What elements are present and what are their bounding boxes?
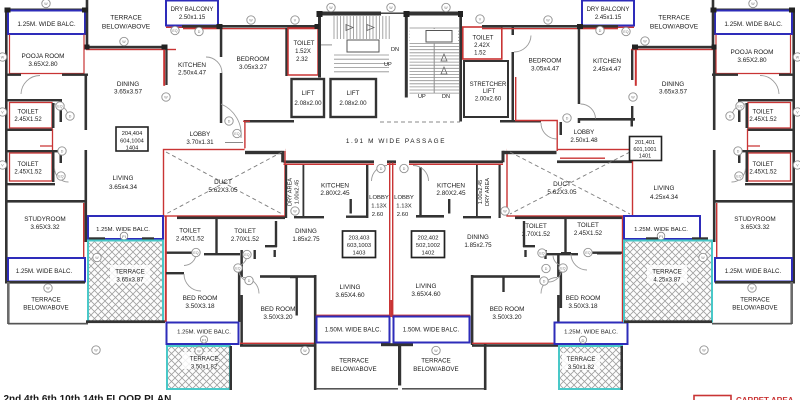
svg-text:1402: 1402	[422, 251, 435, 257]
svg-text:TERRACE: TERRACE	[31, 297, 61, 304]
svg-text:TOILET: TOILET	[577, 222, 599, 229]
svg-text:W: W	[329, 6, 333, 10]
svg-text:D: D	[403, 167, 406, 171]
svg-text:KITCHEN: KITCHEN	[178, 62, 206, 69]
svg-text:UP: UP	[418, 94, 426, 100]
svg-text:TERRACE: TERRACE	[339, 358, 369, 365]
svg-text:BED ROOM: BED ROOM	[183, 295, 218, 302]
svg-text:POOJA ROOM: POOJA ROOM	[731, 49, 774, 56]
svg-text:W: W	[444, 6, 448, 10]
svg-text:TERRACE: TERRACE	[115, 269, 145, 276]
svg-text:POOJA ROOM: POOJA ROOM	[22, 53, 65, 60]
svg-text:STRETCHER: STRETCHER	[470, 82, 507, 88]
svg-text:3.65x3.57: 3.65x3.57	[114, 89, 143, 96]
svg-text:2.60: 2.60	[397, 212, 409, 218]
svg-text:D: D	[61, 150, 64, 154]
svg-text:TOILET: TOILET	[525, 223, 547, 230]
svg-text:2.00x2.60: 2.00x2.60	[475, 97, 502, 103]
svg-text:EQ: EQ	[193, 251, 198, 255]
svg-text:1.85x2.75: 1.85x2.75	[292, 236, 320, 243]
svg-text:2nd,4th,6th,10th,14th FLOOR PL: 2nd,4th,6th,10th,14th FLOOR PLAN	[4, 394, 172, 400]
svg-text:W: W	[94, 349, 98, 353]
svg-text:3.65X3.32: 3.65X3.32	[30, 224, 60, 231]
svg-text:3.65X4.60: 3.65X4.60	[411, 291, 441, 298]
svg-text:202,402: 202,402	[418, 236, 439, 242]
svg-text:2.32: 2.32	[296, 57, 308, 63]
svg-text:W: W	[293, 210, 297, 214]
svg-text:W: W	[503, 210, 507, 214]
svg-text:EQ: EQ	[58, 175, 63, 179]
svg-text:BELOW/ABOVE: BELOW/ABOVE	[331, 366, 376, 373]
svg-text:EQ: EQ	[539, 252, 544, 256]
svg-text:5.62X3.05: 5.62X3.05	[208, 187, 238, 194]
svg-text:2.45X1.52: 2.45X1.52	[749, 117, 777, 123]
svg-text:W: W	[46, 287, 50, 291]
svg-text:3.65x3.87: 3.65x3.87	[116, 277, 144, 284]
svg-text:EQ: EQ	[172, 29, 177, 33]
svg-text:LIFT: LIFT	[302, 90, 315, 97]
svg-text:W: W	[197, 350, 201, 354]
svg-text:D: D	[729, 115, 732, 119]
svg-text:4.25x3.87: 4.25x3.87	[653, 277, 681, 284]
svg-text:LIVING: LIVING	[416, 283, 437, 290]
svg-text:BELOW/ABOVE: BELOW/ABOVE	[23, 305, 68, 312]
svg-text:EQ: EQ	[57, 105, 62, 109]
svg-text:LIVING: LIVING	[340, 284, 361, 291]
svg-text:BEDROOM: BEDROOM	[236, 56, 269, 63]
svg-text:3.70x1.31: 3.70x1.31	[186, 139, 214, 146]
svg-text:1.13X: 1.13X	[371, 204, 386, 210]
svg-text:1.52X: 1.52X	[295, 49, 311, 55]
svg-text:BED ROOM: BED ROOM	[490, 306, 525, 313]
svg-text:TERRACE: TERRACE	[652, 269, 682, 276]
svg-text:203,403: 203,403	[349, 236, 370, 242]
svg-text:TOILET: TOILET	[234, 228, 256, 235]
svg-text:LOBBY: LOBBY	[394, 195, 414, 201]
svg-text:DINING: DINING	[662, 81, 684, 88]
svg-text:2.70X1.52: 2.70X1.52	[522, 231, 551, 238]
svg-text:2.45X1.52: 2.45X1.52	[574, 230, 603, 237]
svg-text:3.50X3.20: 3.50X3.20	[263, 314, 293, 321]
svg-text:D: D	[198, 30, 201, 34]
svg-text:3.65X4.60: 3.65X4.60	[335, 292, 365, 299]
svg-text:DRY AREA: DRY AREA	[485, 178, 491, 206]
svg-text:D: D	[69, 115, 72, 119]
svg-text:STUDYROOM: STUDYROOM	[734, 216, 776, 223]
svg-text:D: D	[228, 120, 231, 124]
svg-text:3.05x4.47: 3.05x4.47	[531, 66, 560, 73]
svg-text:EQ: EQ	[623, 30, 628, 34]
svg-text:3.50X3.20: 3.50X3.20	[492, 314, 522, 321]
svg-text:STUDYROOM: STUDYROOM	[24, 216, 66, 223]
svg-text:TERRACE: TERRACE	[740, 297, 770, 304]
svg-text:204,404: 204,404	[122, 131, 143, 137]
svg-text:DUCT: DUCT	[214, 179, 232, 186]
svg-text:BEDROOM: BEDROOM	[528, 58, 561, 65]
svg-text:3.65X2.80: 3.65X2.80	[28, 61, 58, 68]
svg-text:W: W	[796, 56, 800, 60]
svg-text:W: W	[303, 349, 307, 353]
svg-text:W: W	[643, 40, 647, 44]
svg-text:2.45X1.52: 2.45X1.52	[176, 236, 205, 243]
svg-text:DINING: DINING	[295, 228, 317, 235]
svg-text:EQ: EQ	[244, 253, 249, 257]
svg-text:3.65X3.32: 3.65X3.32	[740, 224, 770, 231]
svg-text:TOILET: TOILET	[179, 228, 201, 235]
svg-text:3.50X3.18: 3.50X3.18	[185, 303, 215, 310]
svg-text:BED ROOM: BED ROOM	[261, 306, 296, 313]
svg-text:BELOW/ABOVE: BELOW/ABOVE	[732, 305, 777, 312]
svg-text:DRY AREA: DRY AREA	[288, 178, 294, 206]
svg-text:DRY BALCONY: DRY BALCONY	[171, 7, 214, 13]
svg-text:1.00x2.45: 1.00x2.45	[478, 180, 484, 205]
svg-text:LIVING: LIVING	[113, 175, 134, 182]
svg-text:3.65x3.57: 3.65x3.57	[659, 89, 688, 96]
svg-text:KITCHEN: KITCHEN	[321, 183, 349, 190]
svg-text:2.42X: 2.42X	[474, 43, 490, 49]
svg-text:1.85x2.75: 1.85x2.75	[464, 242, 492, 249]
svg-text:1.25M. WIDE BALC.: 1.25M. WIDE BALC.	[16, 268, 73, 275]
svg-text:EQ: EQ	[235, 267, 240, 271]
svg-text:1401: 1401	[639, 154, 651, 160]
svg-text:LIFT: LIFT	[347, 90, 360, 97]
svg-text:TERRACE: TERRACE	[110, 15, 142, 22]
svg-text:LOBBY: LOBBY	[190, 131, 211, 138]
svg-text:CARPET AREA: CARPET AREA	[736, 396, 794, 400]
svg-text:EQ: EQ	[737, 105, 742, 109]
svg-text:1.00x2.45: 1.00x2.45	[295, 180, 301, 205]
svg-text:W: W	[546, 19, 550, 23]
svg-text:DINING: DINING	[467, 234, 489, 241]
svg-text:1403: 1403	[353, 251, 366, 257]
svg-text:TERRACE: TERRACE	[658, 15, 690, 22]
svg-text:DN: DN	[442, 94, 450, 100]
svg-text:2.50x1.48: 2.50x1.48	[570, 137, 598, 144]
svg-text:DUCT: DUCT	[553, 181, 571, 188]
svg-text:2.60: 2.60	[372, 212, 384, 218]
svg-text:TERRACE: TERRACE	[567, 357, 596, 363]
svg-text:BELOW/ABOVE: BELOW/ABOVE	[650, 24, 699, 31]
svg-text:601,1001: 601,1001	[633, 147, 656, 153]
svg-text:D: D	[248, 279, 251, 283]
svg-text:FI: FI	[659, 234, 663, 239]
svg-text:1.25M. WIDE BALC.: 1.25M. WIDE BALC.	[177, 330, 231, 336]
svg-text:2.70X1.52: 2.70X1.52	[231, 236, 260, 243]
svg-text:LOBBY: LOBBY	[574, 129, 595, 136]
svg-text:1.50M. WIDE BALC.: 1.50M. WIDE BALC.	[325, 327, 382, 334]
svg-text:FI: FI	[202, 338, 206, 343]
svg-text:W: W	[1, 56, 5, 60]
svg-text:DRY BALCONY: DRY BALCONY	[587, 7, 630, 13]
svg-text:3.50x1.82: 3.50x1.82	[568, 365, 595, 371]
svg-text:3.50x1.82: 3.50x1.82	[191, 365, 218, 371]
svg-text:W: W	[249, 19, 253, 23]
svg-text:TOILET: TOILET	[294, 41, 315, 47]
svg-text:TERRACE: TERRACE	[421, 358, 451, 365]
svg-text:2.45x4.47: 2.45x4.47	[593, 66, 622, 73]
svg-text:3.05x3.27: 3.05x3.27	[239, 64, 268, 71]
svg-text:3.50X3.18: 3.50X3.18	[568, 303, 598, 310]
svg-text:2.50x1.15: 2.50x1.15	[179, 15, 206, 21]
svg-text:W: W	[701, 256, 705, 260]
svg-text:2.08x2.00: 2.08x2.00	[294, 100, 322, 107]
svg-text:LOBBY: LOBBY	[369, 195, 389, 201]
svg-text:KITCHEN: KITCHEN	[593, 58, 621, 65]
svg-text:LIVING: LIVING	[654, 185, 675, 192]
svg-text:DINING: DINING	[117, 81, 139, 88]
svg-text:1.25M. WIDE BALC.: 1.25M. WIDE BALC.	[725, 268, 782, 275]
svg-text:W: W	[389, 6, 393, 10]
svg-text:EQ: EQ	[560, 267, 565, 271]
svg-text:1.52: 1.52	[474, 51, 486, 57]
svg-text:TERRACE: TERRACE	[190, 357, 219, 363]
svg-text:1.25M. WIDE BALC.: 1.25M. WIDE BALC.	[17, 21, 75, 28]
svg-text:KITCHEN: KITCHEN	[437, 183, 465, 190]
svg-text:2.45x1.15: 2.45x1.15	[595, 15, 622, 21]
svg-text:D: D	[380, 167, 383, 171]
svg-text:1.25M. WIDE BALC.: 1.25M. WIDE BALC.	[564, 330, 618, 336]
svg-text:TOILET: TOILET	[473, 36, 494, 42]
svg-text:W: W	[751, 2, 755, 6]
svg-text:1.13X: 1.13X	[396, 204, 411, 210]
svg-text:W: W	[122, 40, 126, 44]
svg-text:2.45X1.52: 2.45X1.52	[14, 170, 42, 176]
svg-text:1404: 1404	[126, 146, 139, 152]
svg-text:3.65x4.34: 3.65x4.34	[109, 184, 138, 191]
svg-text:2.80X2.45: 2.80X2.45	[436, 190, 466, 197]
svg-text:D: D	[545, 267, 548, 271]
svg-text:BELOW/ABOVE: BELOW/ABOVE	[102, 24, 151, 31]
svg-text:3.65X2.80: 3.65X2.80	[737, 57, 767, 64]
svg-text:603,1003: 603,1003	[347, 243, 371, 249]
svg-text:W: W	[164, 96, 168, 100]
svg-text:W: W	[702, 349, 706, 353]
svg-text:201,401: 201,401	[635, 140, 655, 146]
svg-text:D: D	[599, 29, 602, 33]
svg-text:D: D	[543, 280, 546, 284]
svg-text:D: D	[737, 150, 740, 154]
svg-text:TOILET: TOILET	[18, 162, 39, 168]
svg-text:BELOW/ABOVE: BELOW/ABOVE	[413, 366, 458, 373]
svg-text:W: W	[434, 349, 438, 353]
svg-text:W: W	[95, 256, 99, 260]
svg-text:2.80X2.45: 2.80X2.45	[320, 190, 350, 197]
svg-text:4.25x4.34: 4.25x4.34	[650, 194, 679, 201]
svg-text:EQ: EQ	[234, 132, 239, 136]
svg-text:TOILET: TOILET	[753, 110, 774, 116]
svg-text:5.62X3.05: 5.62X3.05	[547, 189, 577, 196]
svg-text:1.50M. WIDE BALC.: 1.50M. WIDE BALC.	[403, 327, 460, 334]
svg-text:BED ROOM: BED ROOM	[566, 295, 601, 302]
svg-text:2.45X1.52: 2.45X1.52	[749, 170, 777, 176]
svg-text:D: D	[566, 117, 569, 121]
svg-text:UP: UP	[384, 62, 392, 68]
svg-text:604,1004: 604,1004	[120, 139, 144, 145]
svg-text:W: W	[631, 96, 635, 100]
svg-text:EQ: EQ	[585, 251, 590, 255]
svg-text:LIFT: LIFT	[483, 89, 496, 95]
svg-text:TOILET: TOILET	[18, 110, 39, 116]
svg-text:W: W	[44, 2, 48, 6]
svg-text:FI: FI	[122, 234, 126, 239]
svg-text:2.08x2.00: 2.08x2.00	[339, 100, 367, 107]
svg-text:2.50x4.47: 2.50x4.47	[178, 70, 207, 77]
svg-text:W: W	[750, 287, 754, 291]
svg-text:TOILET: TOILET	[753, 162, 774, 168]
svg-text:1.25M. WIDE BALC.: 1.25M. WIDE BALC.	[724, 21, 782, 28]
svg-text:2.45X1.52: 2.45X1.52	[14, 117, 42, 123]
svg-text:1.91 M WIDE PASSAGE: 1.91 M WIDE PASSAGE	[346, 138, 446, 145]
svg-text:EQ: EQ	[736, 175, 741, 179]
svg-text:D: D	[582, 338, 585, 343]
svg-text:DN: DN	[391, 47, 399, 53]
svg-text:502,1002: 502,1002	[416, 243, 440, 249]
